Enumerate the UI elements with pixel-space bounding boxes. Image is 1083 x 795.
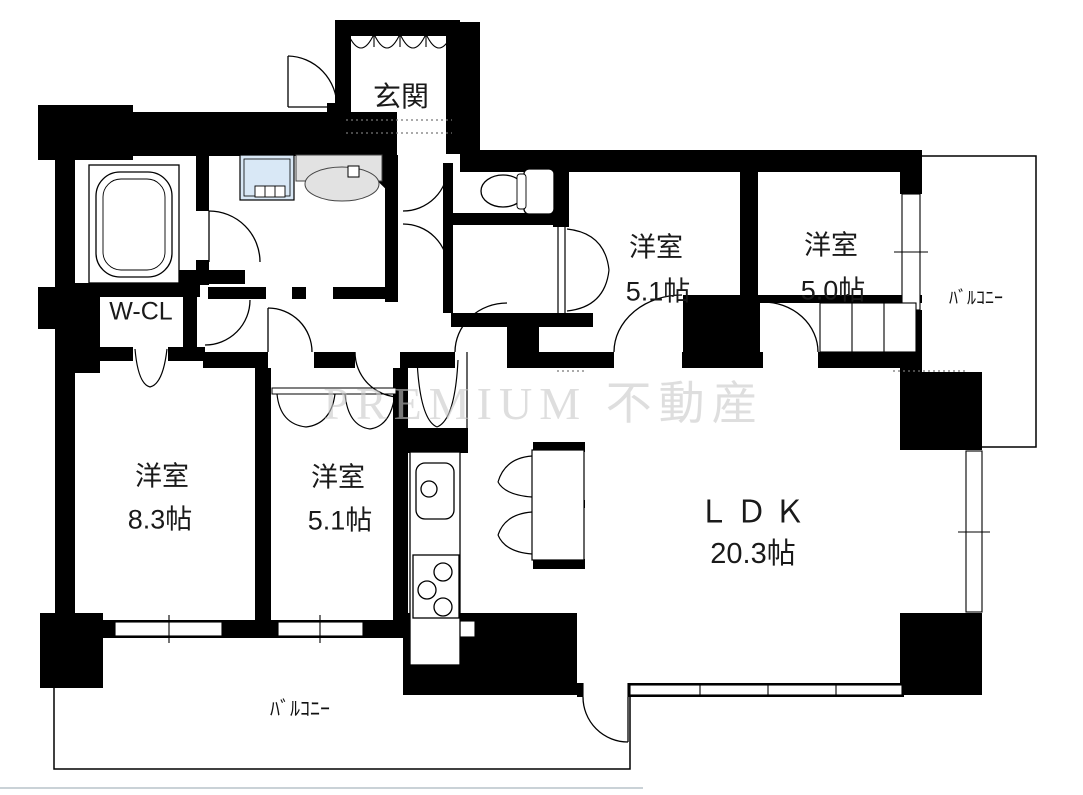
room-mid-name: 洋室 bbox=[311, 456, 365, 495]
closet-top-right bbox=[820, 303, 916, 352]
shoe-cabinet bbox=[348, 34, 452, 48]
balcony-door bbox=[583, 697, 628, 742]
vanity-sink bbox=[296, 155, 382, 201]
balcony-right-label: ﾊﾞﾙｺﾆｰ bbox=[949, 284, 1003, 310]
floor-plan: 玄関 W-CL 洋室 5.1帖 洋室 5.0帖 洋室 8.3帖 洋室 5.1帖 … bbox=[0, 0, 1083, 795]
balcony-bottom-label: ﾊﾞﾙｺﾆｰ bbox=[270, 693, 330, 722]
watermark: PREMIUM 不動産 bbox=[323, 367, 764, 433]
ldk-size: 20.3帖 bbox=[710, 530, 795, 572]
room-top-mid-name: 洋室 bbox=[629, 226, 683, 265]
toilet bbox=[481, 169, 554, 214]
bathroom-door bbox=[209, 211, 260, 262]
room-left-size: 8.3帖 bbox=[128, 498, 193, 537]
kitchen-counter bbox=[410, 452, 460, 665]
wcl-corridor-door bbox=[205, 300, 250, 345]
washroom-door bbox=[403, 166, 448, 211]
ldk-closet bbox=[498, 450, 584, 560]
entrance-label: 玄関 bbox=[373, 75, 429, 115]
room-top-right-size: 5.0帖 bbox=[801, 269, 866, 308]
room-left-name: 洋室 bbox=[135, 455, 189, 494]
toilet-door bbox=[403, 224, 448, 269]
washing-machine bbox=[240, 155, 294, 200]
room-left-door bbox=[268, 308, 312, 352]
ldk-name: ＬＤＫ bbox=[698, 487, 812, 532]
faucet-icon bbox=[421, 481, 437, 497]
wcl-label: W-CL bbox=[109, 298, 172, 327]
balcony-bottom-outline bbox=[54, 688, 630, 769]
room-mid-size: 5.1帖 bbox=[308, 499, 373, 538]
room-top-right-name: 洋室 bbox=[804, 224, 858, 263]
ldk-door bbox=[455, 303, 507, 352]
room-top-mid-size: 5.1帖 bbox=[626, 270, 691, 309]
entrance-door bbox=[288, 56, 337, 107]
walls bbox=[38, 20, 982, 697]
room-top-right-door bbox=[763, 302, 818, 352]
bathtub bbox=[89, 165, 179, 283]
